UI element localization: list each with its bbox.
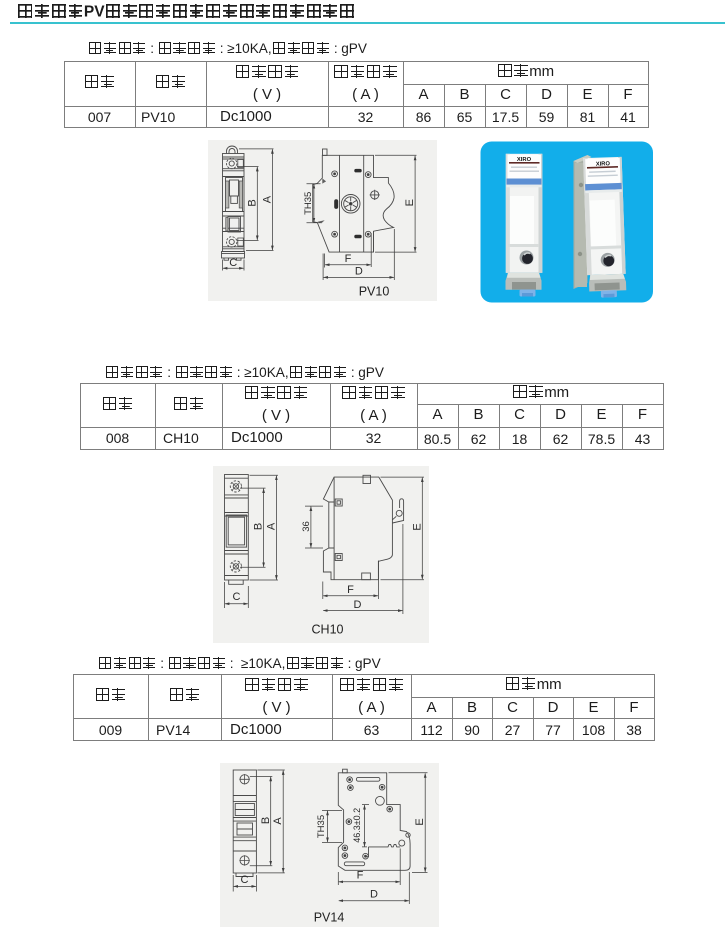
svg-text:C: C <box>241 874 249 886</box>
svg-text:F: F <box>357 869 364 881</box>
svg-text:CH10: CH10 <box>312 623 344 637</box>
svg-text:46.3±0.2: 46.3±0.2 <box>352 808 362 843</box>
svg-text:F: F <box>347 584 354 596</box>
svg-text:A: A <box>262 195 274 203</box>
svg-text:D: D <box>370 888 378 900</box>
svg-text:TH35: TH35 <box>303 192 314 215</box>
svg-text:E: E <box>411 523 423 530</box>
svg-text:B: B <box>260 817 272 824</box>
svg-text:D: D <box>355 266 363 278</box>
svg-text:E: E <box>414 818 426 825</box>
svg-text:B: B <box>253 523 265 530</box>
svg-text:36: 36 <box>301 521 312 532</box>
svg-text:F: F <box>345 253 352 265</box>
svg-text:PV10: PV10 <box>359 285 390 299</box>
svg-text:B: B <box>247 199 259 206</box>
svg-text:C: C <box>233 591 241 603</box>
svg-text:A: A <box>266 522 278 530</box>
svg-text:A: A <box>272 817 284 825</box>
svg-text:C: C <box>229 257 237 269</box>
svg-text:PV14: PV14 <box>314 911 345 925</box>
svg-text:TH35: TH35 <box>316 815 327 838</box>
svg-text:D: D <box>354 599 362 611</box>
svg-text:E: E <box>404 199 416 206</box>
